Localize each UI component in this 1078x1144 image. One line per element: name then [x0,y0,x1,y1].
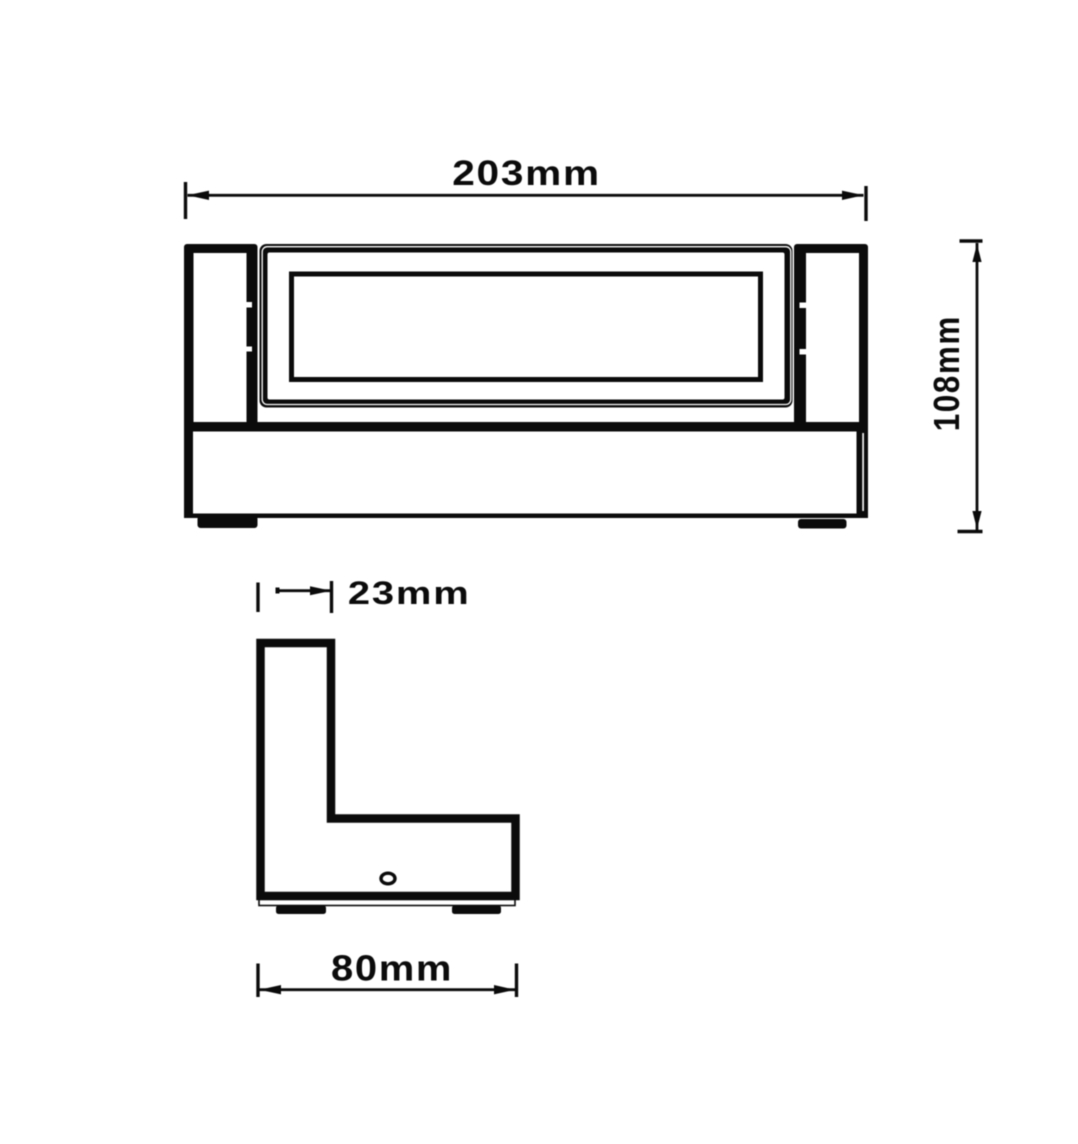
svg-text:108mm: 108mm [927,315,968,431]
svg-text:80mm: 80mm [331,949,453,989]
svg-text:23mm: 23mm [348,575,471,611]
svg-text:203mm: 203mm [452,155,601,194]
